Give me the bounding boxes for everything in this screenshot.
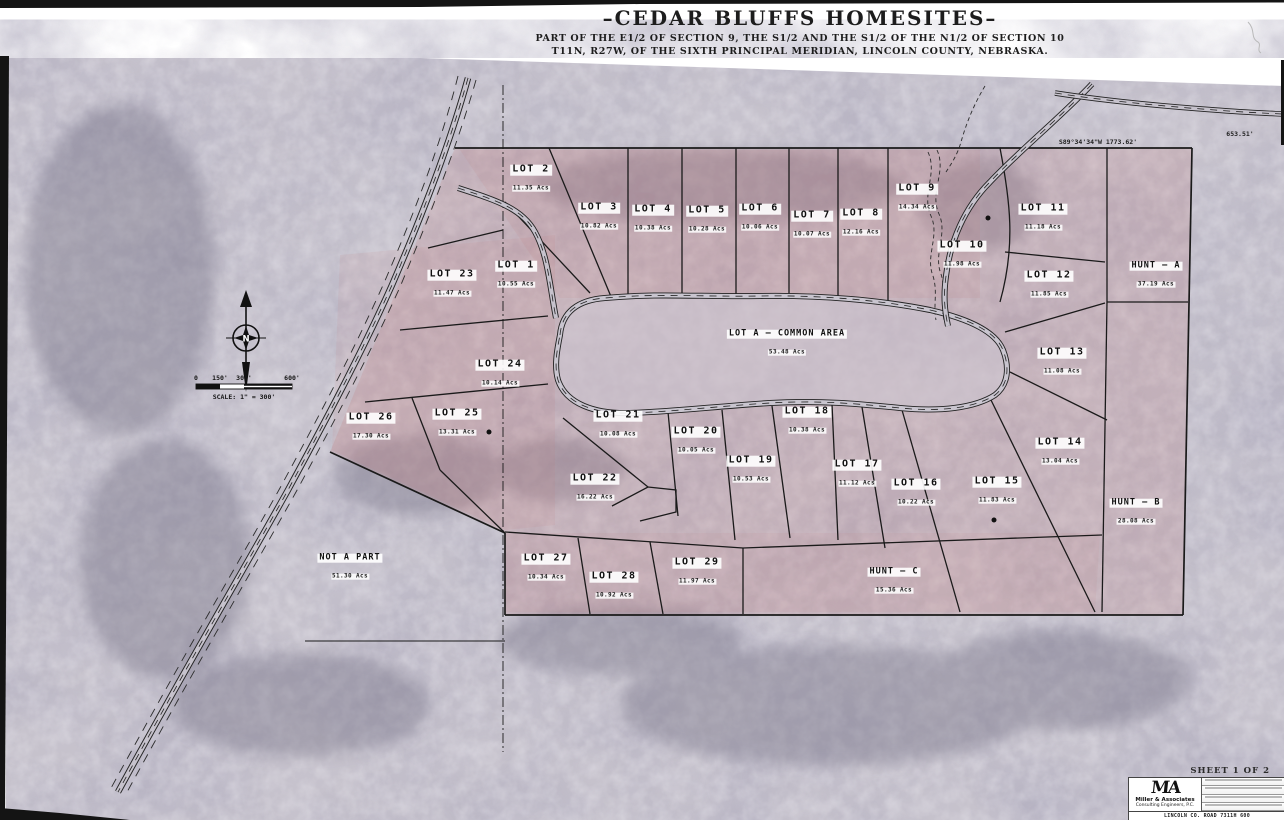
scale-label: SCALE: 1" = 300': [213, 393, 276, 401]
surveyor-title-block: MA Miller & Associates Consulting Engine…: [1128, 777, 1284, 820]
firm-identity: MA Miller & Associates Consulting Engine…: [1129, 778, 1202, 811]
firm-subtitle: Consulting Engineers, P.C.: [1136, 803, 1195, 808]
title-block-table-row: [1202, 803, 1284, 811]
title-block-table-row: [1202, 795, 1284, 803]
firm-logo: MA: [1150, 781, 1180, 796]
map-title: –CEDAR BLUFFS HOMESITES–: [360, 6, 1240, 30]
surveyor-title-block-main: MA Miller & Associates Consulting Engine…: [1129, 778, 1284, 811]
title-block-table: [1202, 778, 1284, 811]
map-title-block: –CEDAR BLUFFS HOMESITES– PART OF THE E1/…: [360, 6, 1240, 57]
bearing-annotation: S89°34'34"W 1773.62': [1059, 138, 1137, 146]
map-subtitle-line2: T11N, R27W, OF THE SIXTH PRINCIPAL MERID…: [360, 46, 1240, 57]
title-block-table-row: [1202, 786, 1284, 794]
title-block-table-row: [1202, 778, 1284, 786]
project-label: LINCOLN CO. ROAD 7311H 600: [1129, 811, 1284, 820]
compass-letter: N: [242, 335, 249, 345]
sheet-number-label: SHEET 1 OF 2: [1190, 766, 1270, 776]
plat-map-graphics: N SCALE: 1" = 300': [0, 0, 1284, 820]
plat-map-page: N SCALE: 1" = 300' –CEDAR BLUFFS HOMESIT…: [0, 0, 1284, 820]
map-subtitle-line1: PART OF THE E1/2 OF SECTION 9, THE S1/2 …: [360, 33, 1240, 44]
distance-annotation: 653.51': [1226, 130, 1253, 138]
